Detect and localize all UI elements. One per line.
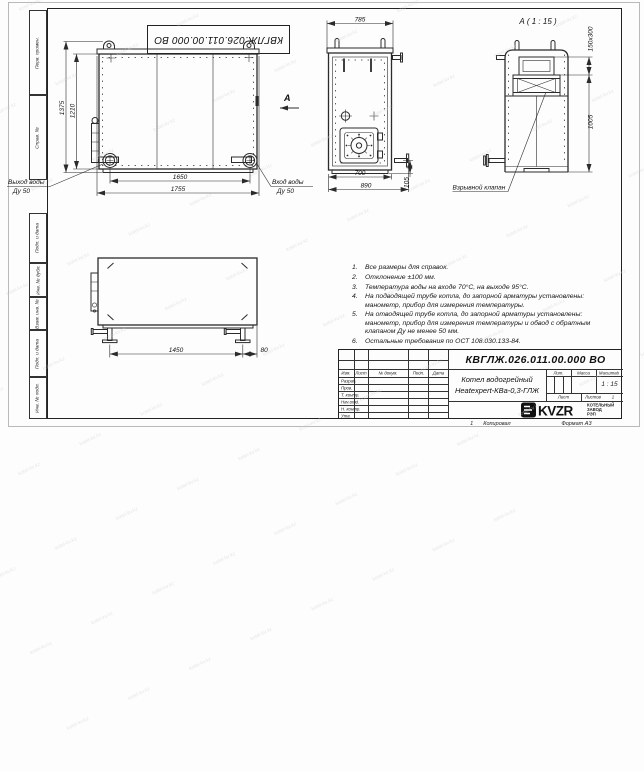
note-text: Остальные требования по ОСТ 108.030.133-… xyxy=(365,338,618,346)
watermark-text: kotel-kv.kz xyxy=(493,508,534,559)
view-a-title: А ( 1 : 15 ) xyxy=(518,17,557,26)
row-nachotd: Нач.отд. xyxy=(341,400,359,404)
dim-front-width-inner: 1650 xyxy=(173,174,188,181)
boiler-assembly-drawing: { "watermark_text": "kotel-kv.kz", "shee… xyxy=(0,0,644,430)
dim-rear-duct: 150х300 xyxy=(588,26,595,51)
watermark-text: kotel-kv.kz xyxy=(237,447,278,498)
product-name-line2: Heatexpert-КВа-0,3-ГЛЖ xyxy=(455,385,539,396)
watermark-text: kotel-kv.kz xyxy=(432,537,473,588)
watermark-text: kotel-kv.kz xyxy=(54,537,95,588)
watermark-text: kotel-kv.kz xyxy=(335,492,376,543)
inlet-dn: Ду 50 xyxy=(276,188,294,195)
row-utv: Утв. xyxy=(341,414,351,418)
sheet-label: Лист xyxy=(551,395,576,399)
note-item: 5.На отводящей трубе котла, до запорной … xyxy=(352,311,618,336)
watermark-text: kotel-kv.kz xyxy=(396,463,437,514)
col-izm: Изм. xyxy=(340,371,352,375)
note-text: На подводящей трубе котла, до запорной а… xyxy=(365,293,618,310)
watermark-text: kotel-kv.kz xyxy=(152,582,193,633)
title-block: Изм. Лист Подп. Дата № докум. Разраб. Пр… xyxy=(338,349,622,419)
note-number: 6. xyxy=(352,338,365,346)
scale-label: Масштаб xyxy=(599,371,619,375)
note-text: Отклонение ±100 мм. xyxy=(365,274,618,282)
dim-front-height-inner: 1210 xyxy=(70,103,77,118)
kvzr-logo: KVZR xyxy=(521,402,587,418)
col-list: Лист xyxy=(355,371,367,375)
footer-format: Формат А3 xyxy=(561,421,591,427)
note-text: На отводящей трубе котла, до запорной ар… xyxy=(365,311,618,336)
footer-copied-by: Копировал xyxy=(483,421,510,427)
dim-front-height-outer: 1375 xyxy=(59,100,66,115)
doc-number: КВГЛЖ.026.011.00.000 ВО xyxy=(448,350,623,369)
view-rear: А ( 1 : 15 ) 150х300 1005 Взрывной клапа… xyxy=(453,17,595,192)
note-number: 1. xyxy=(352,264,365,272)
sheets-label: Листов xyxy=(583,395,603,399)
watermark-text: kotel-kv.kz xyxy=(310,597,351,648)
note-text: Все размеры для справок. xyxy=(365,264,618,272)
watermark-text: kotel-kv.kz xyxy=(91,611,132,662)
dim-front-width-outer: 1755 xyxy=(171,186,186,193)
dim-side-bottom-inner: 700 xyxy=(355,170,366,177)
note-item: 1.Все размеры для справок. xyxy=(352,264,618,272)
kvzr-logo-text: KVZR xyxy=(538,404,574,419)
watermark-text: kotel-kv.kz xyxy=(213,552,254,603)
watermark-text: kotel-kv.kz xyxy=(18,462,59,513)
note-item: 2.Отклонение ±100 мм. xyxy=(352,274,618,282)
dim-plan-length: 1450 xyxy=(169,347,184,354)
watermark-text: kotel-kv.kz xyxy=(176,477,217,528)
note-text: Температура воды на входе 70°С, на выход… xyxy=(365,284,618,292)
watermark-text: kotel-kv.kz xyxy=(30,641,71,692)
note-number: 3. xyxy=(352,284,365,292)
outlet-label: Выход воды xyxy=(8,178,45,186)
row-razrab: Разраб. xyxy=(341,379,357,383)
footer-copy-num: 1 xyxy=(470,421,473,427)
notes-list: 1.Все размеры для справок. 2.Отклонение … xyxy=(352,264,618,348)
dim-side-bottom-outer: 890 xyxy=(361,183,372,190)
dim-plan-offset: 80 xyxy=(261,347,269,354)
lit-label: Лит. xyxy=(550,371,568,375)
watermark-text: kotel-kv.kz xyxy=(0,566,34,617)
row-tkontr: Т. контр. xyxy=(341,393,360,397)
note-number: 2. xyxy=(352,274,365,282)
watermark-text: kotel-kv.kz xyxy=(371,567,412,618)
product-name-line1: Котел водогрейный xyxy=(461,374,532,385)
watermark-text: kotel-kv.kz xyxy=(188,657,229,708)
dim-side-top: 785 xyxy=(355,17,366,24)
organization-line2: ЗАВОД РЭП xyxy=(587,408,611,417)
view-front: 1650 1755 1375 1210 Выход воды Ду 50 Вхо… xyxy=(7,41,313,196)
organization-cell: KVZR КОТЕЛЬНЫЙ ЗАВОД РЭП xyxy=(448,401,623,420)
note-item: 3.Температура воды на входе 70°С, на вых… xyxy=(352,284,618,292)
row-prov: Пров. xyxy=(341,386,352,390)
watermark-text: kotel-kv.kz xyxy=(115,507,156,558)
note-number: 4. xyxy=(352,293,365,310)
view-plan: 1450 80 xyxy=(91,258,268,358)
inlet-label: Вход воды xyxy=(272,178,304,186)
product-name: Котел водогрейный Heatexpert-КВа-0,3-ГЛЖ xyxy=(448,369,546,401)
note-item: 4.На подводящей трубе котла, до запорной… xyxy=(352,293,618,310)
col-doc: № докум. xyxy=(374,371,403,375)
section-arrow-label: А xyxy=(283,93,291,103)
col-date: Дата xyxy=(431,371,446,375)
watermark-text: kotel-kv.kz xyxy=(127,686,168,737)
sheets-value: 1 xyxy=(606,395,620,399)
watermark-text: kotel-kv.kz xyxy=(457,433,498,484)
view-side: 785 700 890 105 xyxy=(327,17,413,193)
mass-label: Масса xyxy=(575,371,593,375)
organization-name: КОТЕЛЬНЫЙ ЗАВОД РЭП xyxy=(587,404,611,417)
scale-value: 1 : 15 xyxy=(596,376,623,393)
explosion-valve-label: Взрывной клапан xyxy=(453,184,506,192)
side-stub-mark xyxy=(256,96,259,106)
watermark-text: kotel-kv.kz xyxy=(249,627,290,678)
dim-rear-height: 1005 xyxy=(588,114,595,129)
outlet-dn: Ду 50 xyxy=(12,188,30,195)
watermark-text: kotel-kv.kz xyxy=(66,716,107,767)
note-number: 5. xyxy=(352,311,365,336)
watermark-text: kotel-kv.kz xyxy=(79,432,120,483)
dim-side-stub: 105 xyxy=(404,177,411,188)
row-nkontr: Н. контр. xyxy=(341,407,360,411)
note-item: 6.Остальные требования по ОСТ 108.030.13… xyxy=(352,338,618,346)
watermark-text: kotel-kv.kz xyxy=(274,522,315,573)
col-doc-header-sign: Подп. xyxy=(411,371,426,375)
